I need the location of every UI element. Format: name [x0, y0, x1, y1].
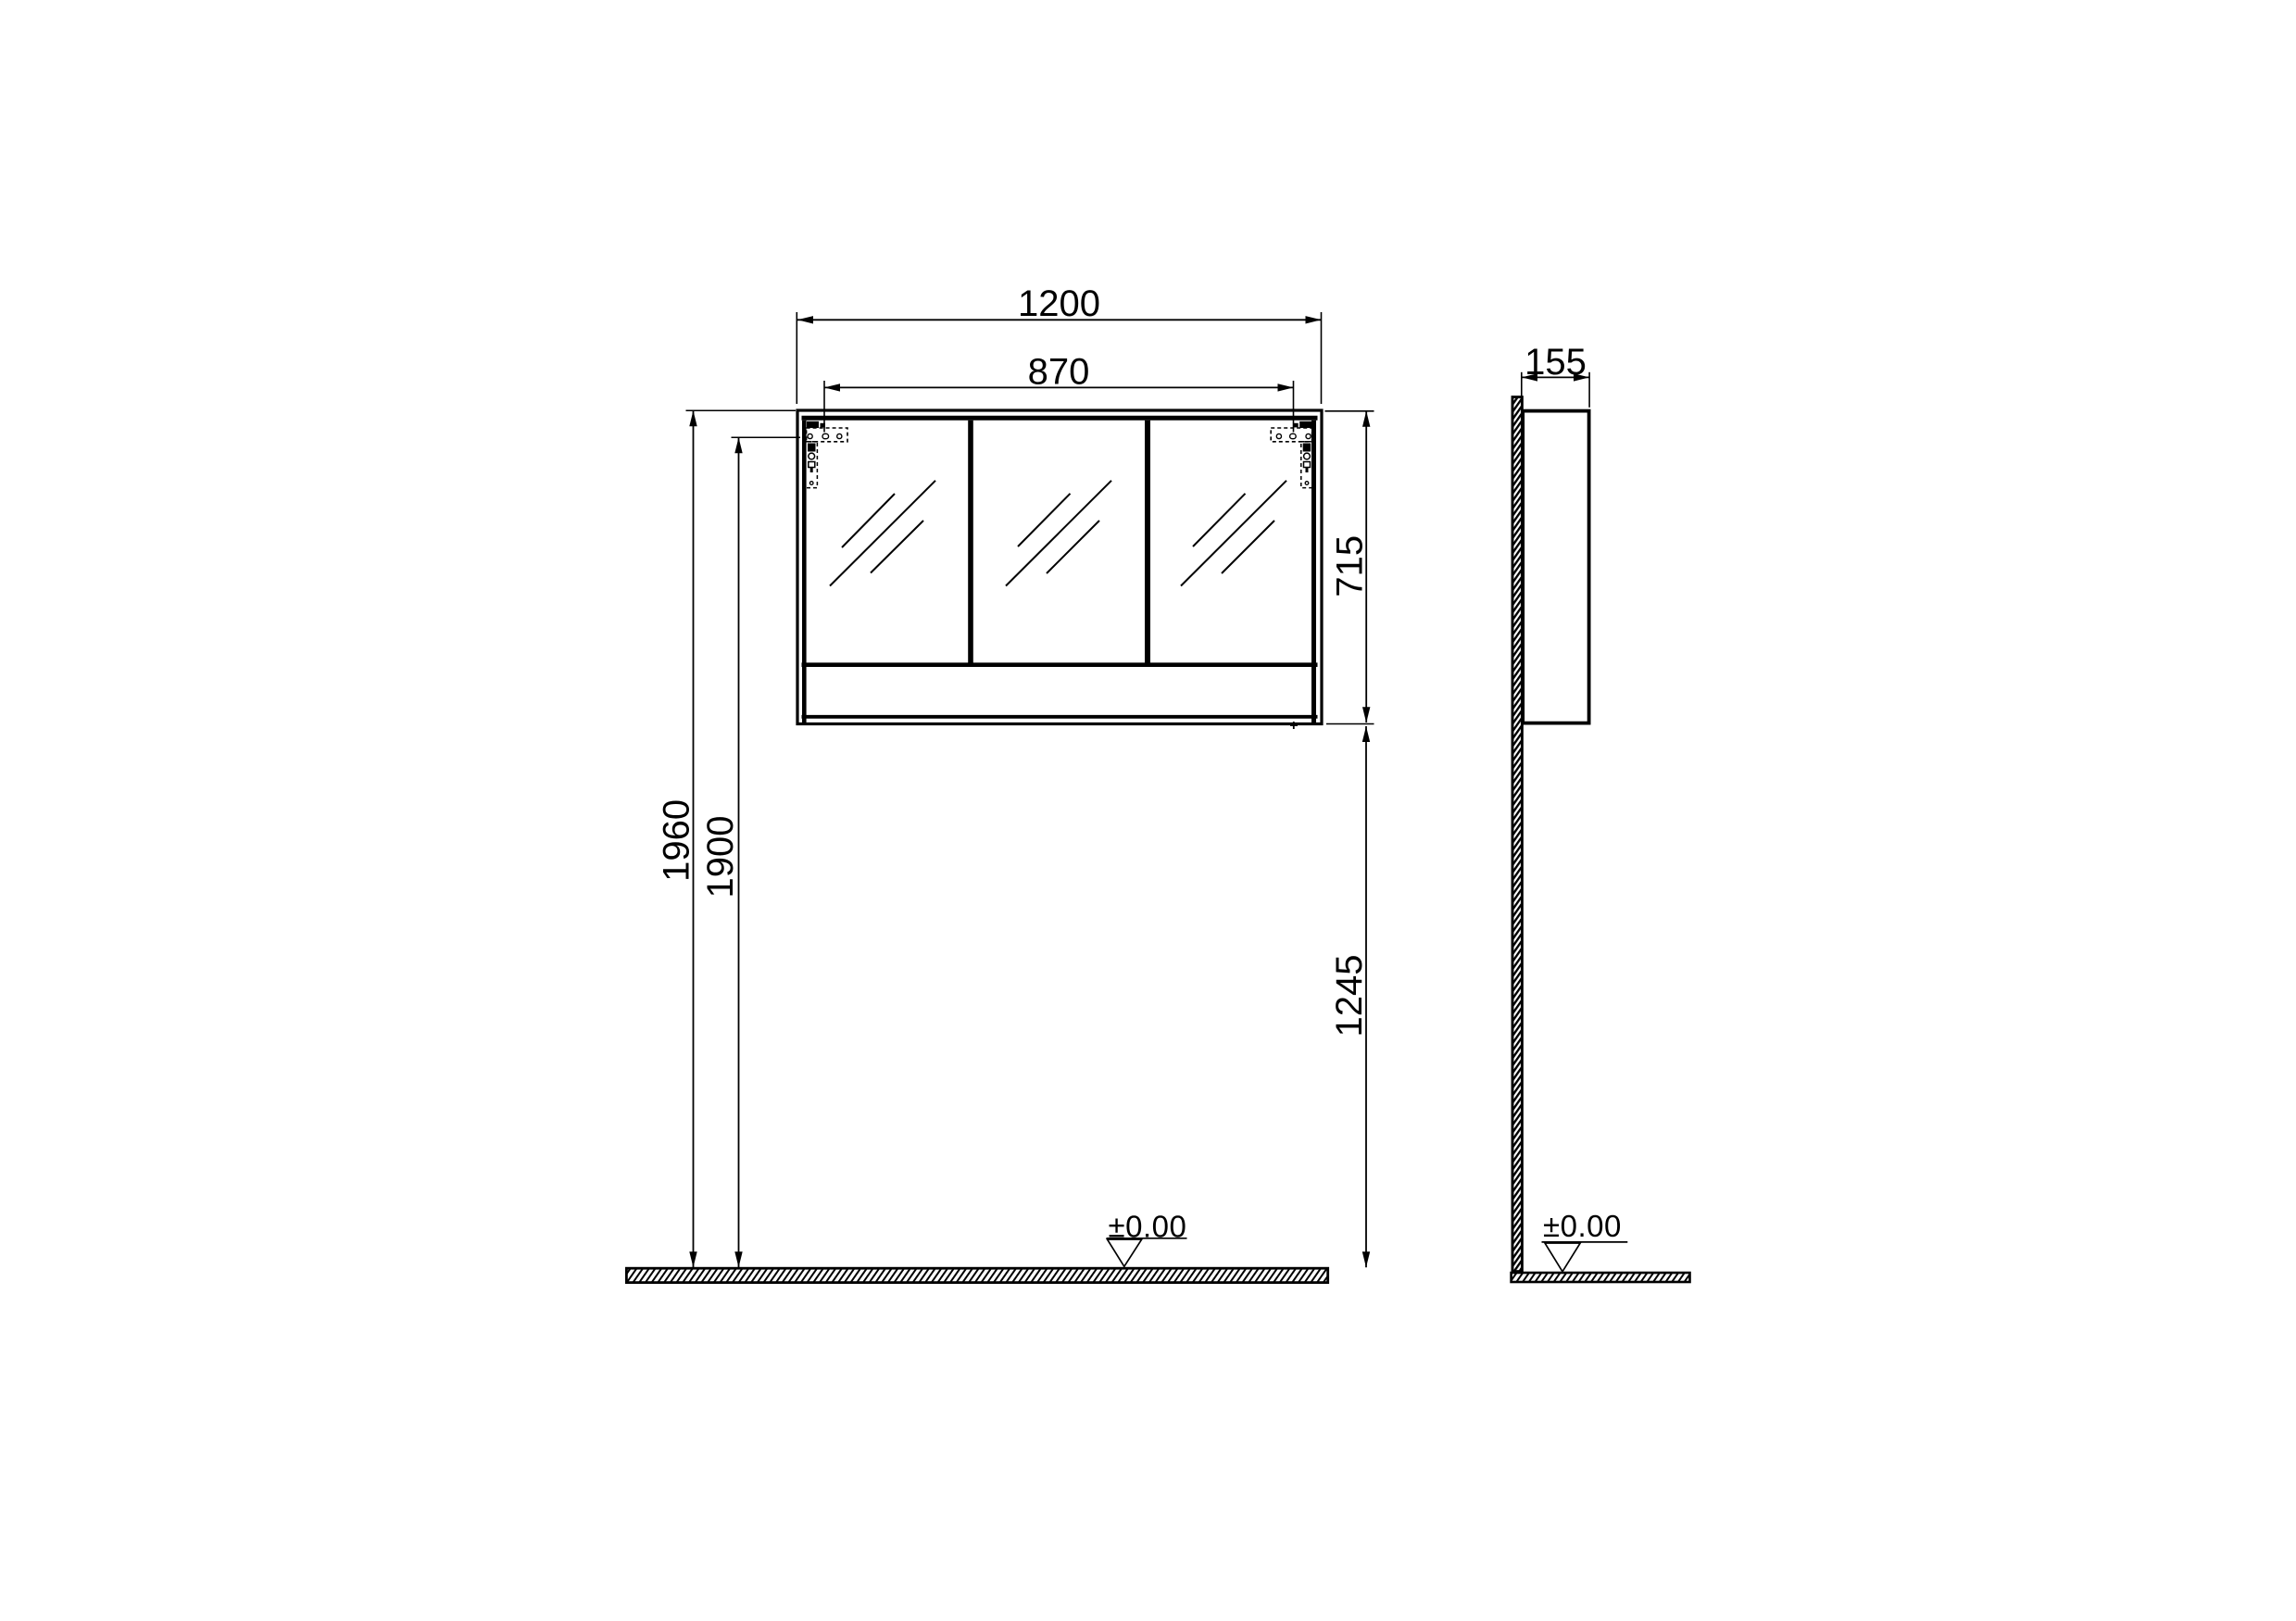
- svg-text:715: 715: [1330, 535, 1371, 597]
- svg-text:1900: 1900: [700, 816, 741, 898]
- svg-text:1200: 1200: [1018, 283, 1100, 324]
- svg-text:870: 870: [1028, 351, 1090, 392]
- svg-text:±0.00: ±0.00: [1543, 1209, 1622, 1243]
- svg-text:1960: 1960: [657, 799, 697, 882]
- svg-text:1245: 1245: [1329, 955, 1370, 1037]
